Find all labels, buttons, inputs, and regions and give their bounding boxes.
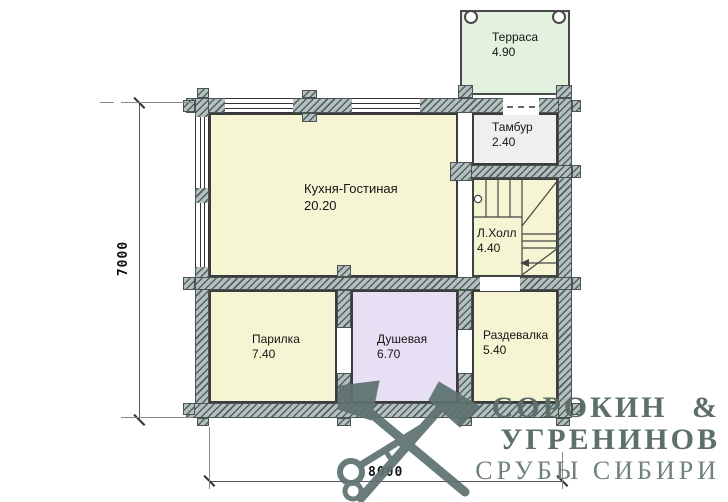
window-top-2 [352, 98, 420, 113]
room-label-shower: Душевая 6.70 [377, 332, 427, 362]
wall-right [558, 98, 572, 418]
extension-line [121, 102, 193, 103]
wall-stub-right-2 [572, 277, 581, 290]
wall-stub-topright-out [572, 100, 581, 112]
wall-stub-kitchen-top-in [302, 113, 317, 122]
wall-stub-kitchen-top-out [302, 90, 317, 98]
logo-line-1: СОРОКИН & [475, 392, 720, 424]
room-label-tambour: Тамбур 2.40 [492, 120, 533, 150]
terrace-column-right [552, 10, 566, 24]
extension-line [100, 102, 114, 103]
wall-stub-terrace-right [556, 85, 572, 98]
dimension-value-vertical: 7000 [117, 241, 130, 276]
logo-line-2: УГРЕНИНОВ [475, 424, 720, 456]
door-leaf [507, 106, 534, 108]
stairs-direction-arrow [520, 259, 529, 267]
company-logo: СОРОКИН & УГРЕНИНОВ СРУБЫ СИБИРИ [475, 392, 720, 486]
wall-stub-midleft-out [183, 277, 195, 290]
wall-stub-bottomleft-out [183, 403, 195, 415]
room-label-terrace: Терраса 4.90 [492, 30, 538, 60]
door-terrace-tambour [503, 96, 539, 115]
extension-line [209, 427, 210, 489]
window-left-1 [195, 117, 209, 188]
room-label-parilka: Парилка 7.40 [252, 332, 300, 362]
wall-stub-bottom-1 [197, 418, 209, 426]
room-label-kitchen: Кухня-Гостиная 20.20 [304, 180, 398, 214]
extension-line [121, 417, 193, 418]
logo-axes-key-icon [333, 380, 485, 502]
wall-stub-kitchen-right [450, 162, 472, 181]
wall-tambour-bottom [458, 165, 572, 178]
room-label-hall: Л.Холл 4.40 [477, 226, 517, 256]
window-left-2 [195, 203, 209, 267]
window-top-1 [225, 98, 293, 113]
door-parilka-shower [338, 328, 350, 373]
wall-stub-topleft-up [197, 88, 209, 98]
wall-stub-right-1 [572, 165, 581, 178]
door-hall-dressing [480, 276, 520, 291]
dimension-line-vertical [139, 103, 140, 420]
room-label-dressing: Раздевалка 5.40 [483, 328, 548, 358]
wall-stub-terrace-left [458, 85, 473, 98]
logo-line-3: СРУБЫ СИБИРИ [475, 456, 720, 486]
terrace-column-left [464, 10, 478, 24]
floor-plan-canvas: Терраса 4.90 Тамбур 2.40 Кухня-Гостиная … [0, 0, 728, 502]
wall-shower-dressing-upper [458, 290, 472, 330]
door-shower-dressing [459, 330, 471, 373]
wall-stub-divider-up [337, 265, 351, 277]
wall-parilka-shower-upper [337, 290, 351, 328]
